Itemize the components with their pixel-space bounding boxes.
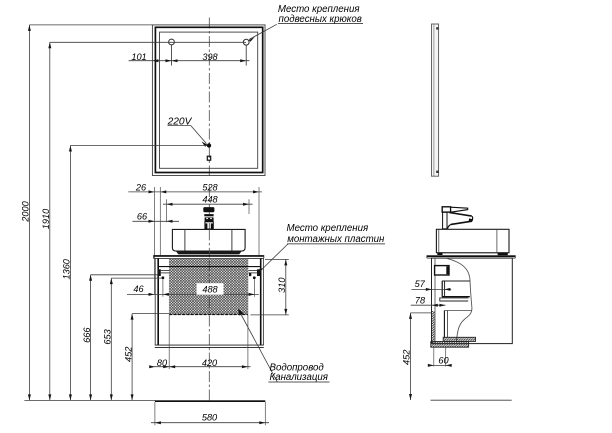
svg-text:26: 26 — [135, 182, 147, 192]
svg-text:488: 488 — [202, 284, 218, 294]
svg-text:60: 60 — [438, 355, 449, 365]
svg-text:452: 452 — [123, 347, 133, 362]
svg-text:78: 78 — [415, 295, 426, 305]
svg-text:57: 57 — [415, 279, 426, 289]
svg-text:66: 66 — [137, 212, 148, 222]
svg-text:46: 46 — [133, 284, 144, 294]
svg-text:2000: 2000 — [21, 200, 31, 222]
svg-text:Место крепления: Место крепления — [287, 223, 369, 234]
svg-text:653: 653 — [103, 328, 113, 344]
svg-text:1360: 1360 — [62, 258, 72, 279]
svg-text:Канализация: Канализация — [270, 372, 328, 383]
svg-text:666: 666 — [82, 327, 92, 343]
svg-text:монтажных пластин: монтажных пластин — [287, 234, 385, 245]
svg-text:528: 528 — [202, 182, 218, 192]
svg-text:398: 398 — [202, 52, 218, 62]
svg-text:580: 580 — [202, 413, 218, 423]
svg-text:420: 420 — [202, 358, 218, 368]
svg-text:448: 448 — [202, 195, 218, 205]
svg-text:80: 80 — [157, 358, 168, 368]
svg-text:1910: 1910 — [41, 208, 51, 229]
svg-text:452: 452 — [402, 350, 412, 365]
svg-text:310: 310 — [277, 277, 287, 293]
svg-text:101: 101 — [131, 52, 146, 62]
